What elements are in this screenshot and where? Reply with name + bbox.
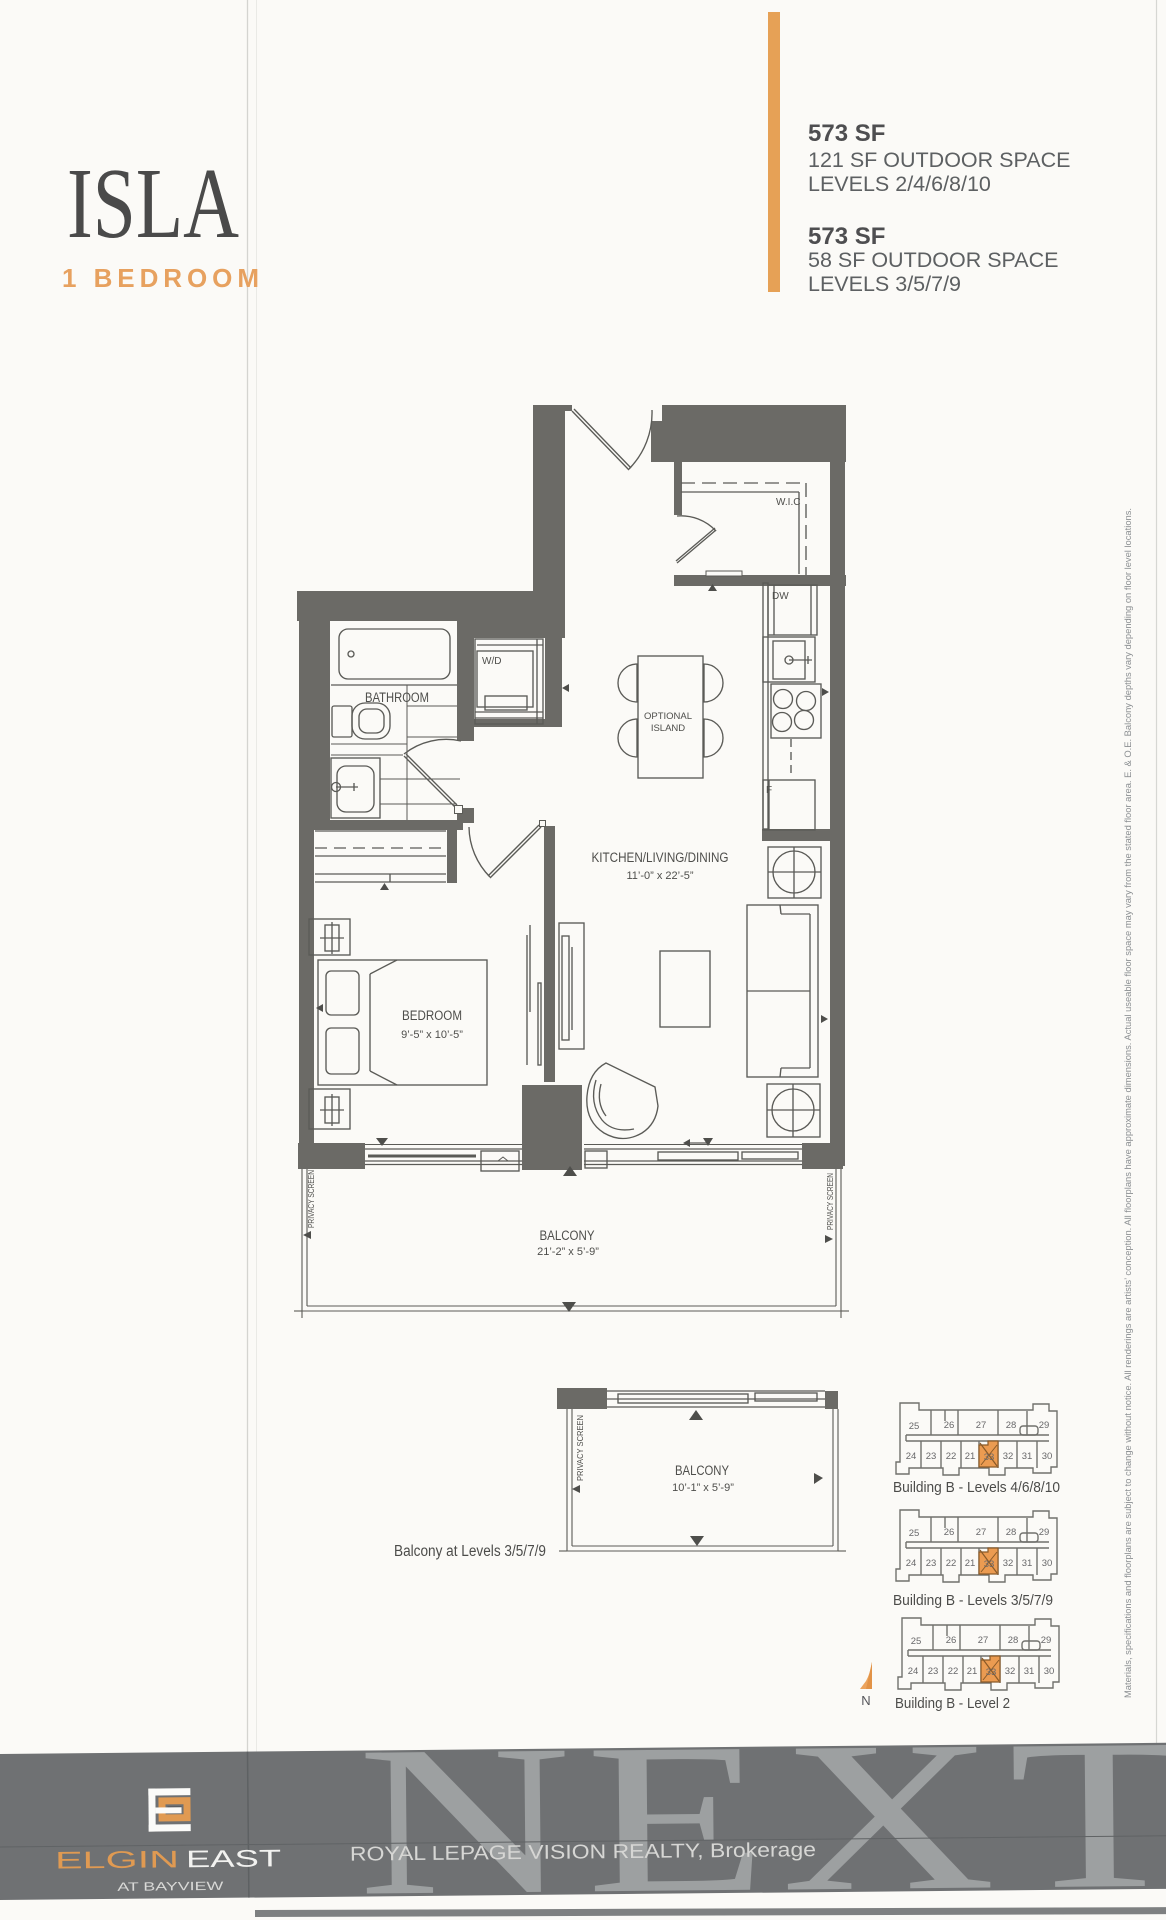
- svg-text:W.I.C: W.I.C: [776, 497, 800, 508]
- svg-text:Materials, specifications and: Materials, specifications and floorplans…: [1123, 508, 1134, 1698]
- svg-text:KITCHEN/LIVING/DINING: KITCHEN/LIVING/DINING: [592, 850, 729, 865]
- svg-text:ISLAND: ISLAND: [651, 723, 685, 734]
- svg-text:NEXT: NEXT: [357, 1695, 1166, 1920]
- svg-text:F: F: [766, 785, 772, 796]
- svg-text:573 SF: 573 SF: [808, 223, 885, 250]
- svg-text:DW: DW: [772, 591, 789, 602]
- svg-text:BALCONY: BALCONY: [675, 1463, 729, 1478]
- svg-text:9’-5” x 10’-5”: 9’-5” x 10’-5”: [401, 1029, 463, 1041]
- svg-text:ISLA: ISLA: [67, 147, 239, 259]
- svg-text:OPTIONAL: OPTIONAL: [644, 711, 692, 722]
- svg-text:573 SF: 573 SF: [808, 120, 885, 147]
- svg-text:LEVELS 3/5/7/9: LEVELS 3/5/7/9: [808, 272, 961, 296]
- svg-text:EAST: EAST: [186, 1845, 282, 1873]
- svg-text:AT BAYVIEW: AT BAYVIEW: [117, 1879, 224, 1894]
- svg-text:58 SF OUTDOOR SPACE: 58 SF OUTDOOR SPACE: [808, 248, 1058, 272]
- svg-text:Building B - Levels 4/6/8/10: Building B - Levels 4/6/8/10: [893, 1479, 1060, 1496]
- svg-text:10’-1” x 5’-9”: 10’-1” x 5’-9”: [672, 1482, 734, 1494]
- svg-text:11’-0” x 22’-5”: 11’-0” x 22’-5”: [626, 870, 693, 882]
- svg-text:W/D: W/D: [482, 656, 501, 667]
- svg-text:BALCONY: BALCONY: [540, 1228, 595, 1243]
- svg-text:Building B - Levels 3/5/7/9: Building B - Levels 3/5/7/9: [893, 1592, 1053, 1609]
- svg-text:121 SF OUTDOOR SPACE: 121 SF OUTDOOR SPACE: [808, 148, 1070, 172]
- svg-text:ELGIN: ELGIN: [55, 1846, 179, 1874]
- svg-text:21’-2” x 5’-9”: 21’-2” x 5’-9”: [537, 1246, 599, 1258]
- svg-text:BEDROOM: BEDROOM: [402, 1008, 462, 1023]
- svg-text:1 BEDROOM: 1 BEDROOM: [62, 263, 259, 293]
- svg-text:PRIVACY SCREEN: PRIVACY SCREEN: [576, 1415, 585, 1481]
- svg-text:Balcony at Levels 3/5/7/9: Balcony at Levels 3/5/7/9: [394, 1543, 546, 1560]
- svg-text:ROYAL LEPAGE VISION REALTY, Br: ROYAL LEPAGE VISION REALTY, Brokerage: [350, 1839, 816, 1865]
- svg-text:BATHROOM: BATHROOM: [365, 690, 429, 705]
- svg-text:LEVELS 2/4/6/8/10: LEVELS 2/4/6/8/10: [808, 172, 991, 196]
- svg-text:PRIVACY SCREEN: PRIVACY SCREEN: [826, 1173, 835, 1230]
- svg-text:PRIVACY SCREEN: PRIVACY SCREEN: [307, 1170, 316, 1228]
